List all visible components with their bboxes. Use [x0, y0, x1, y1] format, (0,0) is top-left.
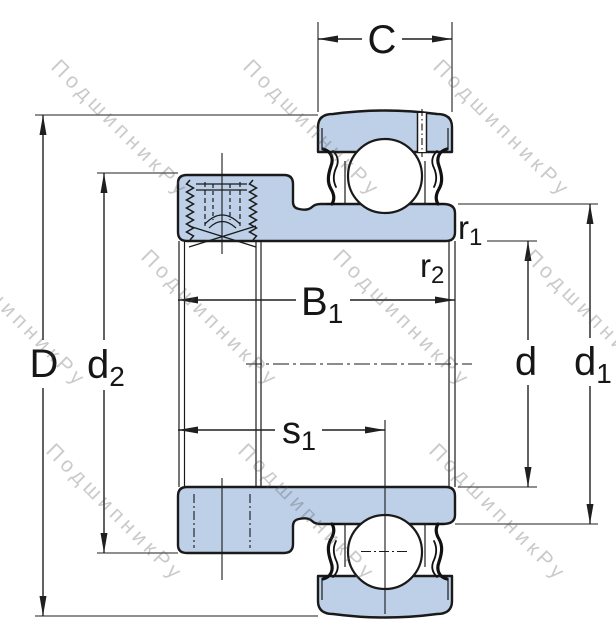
lubrication-hole-slot: [418, 113, 427, 152]
seal-bottom-right: [425, 524, 447, 579]
arrowhead: [40, 115, 47, 135]
arrowhead: [587, 204, 594, 224]
arrowhead: [101, 173, 108, 193]
arrowhead: [40, 596, 47, 616]
arrowhead: [435, 297, 455, 304]
arrowhead: [587, 504, 594, 524]
arrowhead: [318, 36, 338, 43]
dim-label-B1: B1: [301, 280, 343, 329]
lubrication-hole: [418, 109, 428, 157]
dim-label-s1: s1: [282, 410, 316, 456]
dim-label-d1: d1: [574, 340, 612, 389]
dim-label-C: C: [368, 18, 397, 62]
arrowhead: [432, 36, 452, 43]
watermark: ПодшипникРу: [41, 439, 188, 586]
watermark: ПодшипникРу: [328, 245, 475, 392]
arrowhead: [365, 427, 385, 434]
dim-label-d: d: [515, 340, 537, 384]
watermark: ПодшипникРу: [46, 55, 193, 202]
seal-top-right: [425, 149, 447, 204]
dim-label-r2: r2: [420, 247, 444, 289]
arrowhead: [525, 467, 532, 487]
dim-label-r1: r1: [458, 209, 482, 251]
arrowhead: [178, 427, 198, 434]
bearing-cross-section-diagram: C B1 s1 D d2 d d1 r1 r2 ПодшипникРу Подш…: [0, 0, 616, 638]
arrowhead: [101, 533, 108, 553]
bearing-drawing-canvas: C B1 s1 D d2 d d1 r1 r2 ПодшипникРу Подш…: [0, 0, 616, 638]
dim-label-d2: d2: [87, 343, 125, 392]
